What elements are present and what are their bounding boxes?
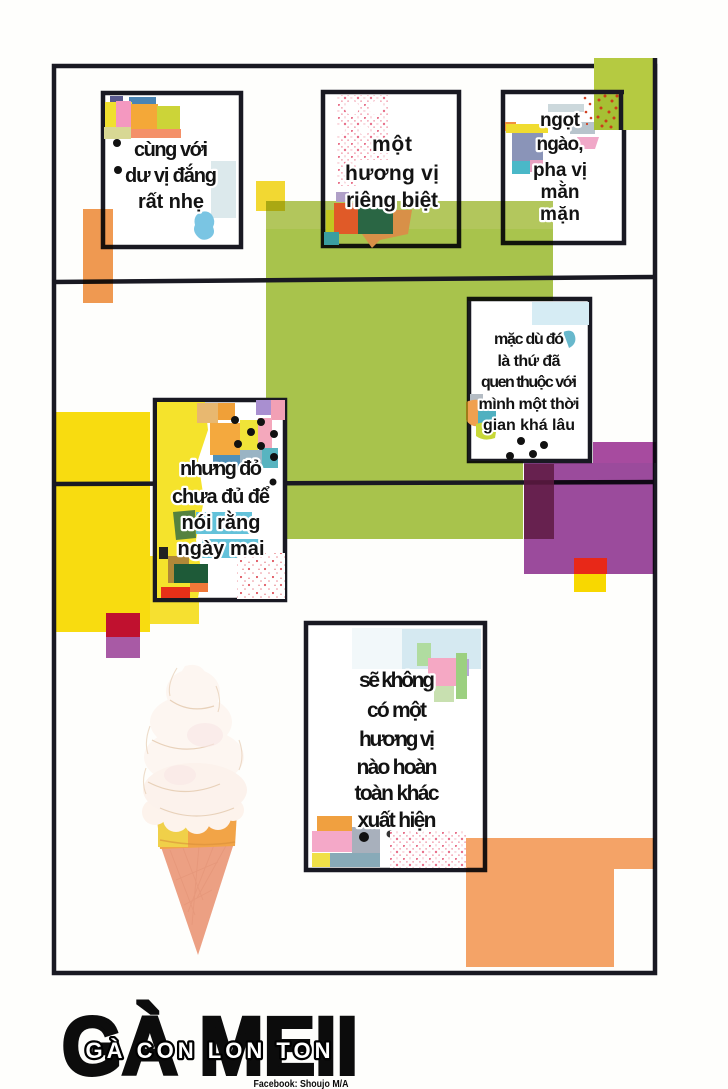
svg-text:sẽ không: sẽ không [359, 669, 435, 692]
svg-text:gian khá lâu: gian khá lâu [483, 417, 575, 434]
svg-text:cùng với: cùng với [134, 139, 208, 161]
svg-text:quen thuộc với: quen thuộc với [481, 374, 577, 391]
svg-text:toàn khác: toàn khác [355, 782, 440, 805]
svg-text:rất nhẹ: rất nhẹ [138, 191, 204, 213]
svg-text:có một: có một [367, 699, 427, 722]
svg-text:riêng biệt: riêng biệt [346, 189, 438, 212]
svg-text:mặc dù đó: mặc dù đó [494, 331, 564, 348]
svg-text:mằn: mằn [541, 181, 580, 203]
svg-text:dư vị đắng: dư vị đắng [125, 163, 217, 187]
svg-text:nhưng đỏ: nhưng đỏ [180, 458, 262, 480]
svg-text:nói rằng: nói rằng [182, 510, 261, 534]
svg-text:pha vị: pha vị [533, 160, 587, 181]
svg-text:ngọt: ngọt [540, 110, 581, 131]
svg-text:chưa đủ để: chưa đủ để [172, 486, 270, 508]
svg-text:xuất hiện: xuất hiện [358, 809, 437, 832]
svg-text:là thứ đã: là thứ đã [498, 353, 561, 370]
svg-text:mặn: mặn [540, 204, 580, 225]
svg-text:ngày mai: ngày mai [178, 538, 265, 560]
svg-text:mình một thời: mình một thời [479, 396, 580, 413]
svg-text:ngào,: ngào, [537, 134, 584, 155]
svg-text:GÀ CON LON TON: GÀ CON LON TON [86, 1038, 331, 1063]
svg-text:nào hoàn: nào hoàn [357, 756, 438, 779]
svg-text:Facebook: Shoujo M/A: Facebook: Shoujo M/A [254, 1078, 349, 1089]
svg-text:hương vị: hương vị [345, 162, 439, 185]
svg-text:một: một [372, 133, 412, 156]
svg-text:hương vị: hương vị [359, 728, 435, 751]
